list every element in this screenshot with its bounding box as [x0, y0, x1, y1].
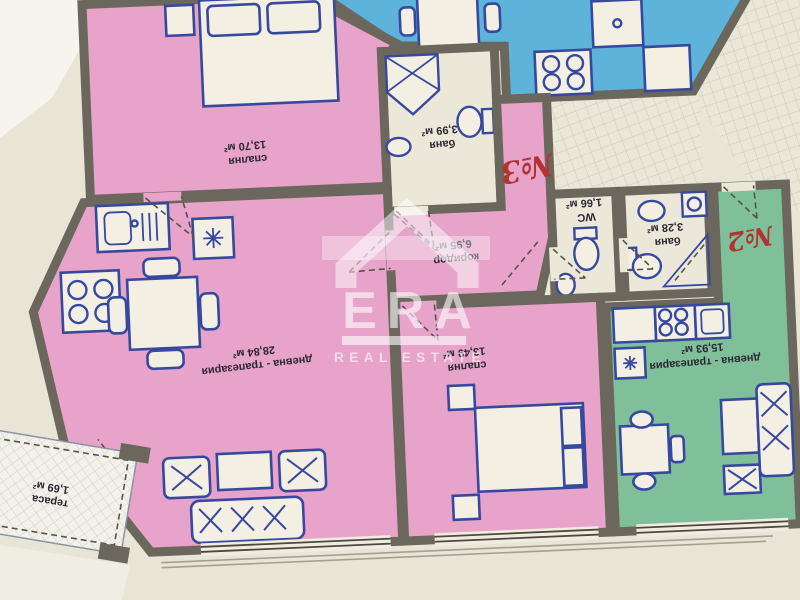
kitchen-counter-icon — [613, 307, 656, 343]
coffee-table-icon — [724, 464, 761, 494]
chair-icon — [108, 297, 128, 334]
bed-icon — [475, 403, 587, 492]
era-tagline-text: REAL ESTATE — [334, 350, 486, 365]
armchair-icon — [163, 456, 211, 498]
sofa-icon — [191, 496, 305, 543]
fridge-icon — [192, 217, 234, 259]
pillow-icon — [207, 4, 260, 36]
fridge-icon — [615, 347, 646, 378]
kitchen-sink-icon — [96, 203, 170, 252]
table-icon — [620, 424, 670, 474]
chair-icon — [633, 473, 656, 490]
chair-icon — [147, 350, 184, 370]
nightstand-icon — [448, 385, 475, 410]
stove-icon — [655, 305, 696, 341]
chair-icon — [630, 411, 653, 428]
pillow-icon — [561, 407, 583, 446]
sink-icon — [638, 200, 665, 221]
sink-icon — [695, 304, 730, 339]
nightstand-icon — [453, 495, 480, 520]
room-bathroom-apt2: баня 3,28 м² — [621, 187, 712, 296]
nightstand-icon — [165, 5, 194, 36]
era-brand-text: ERA — [342, 282, 482, 340]
washing-machine-icon — [682, 192, 707, 217]
bed-icon — [199, 0, 338, 106]
stove-icon — [534, 49, 592, 95]
pillow-icon — [563, 447, 585, 486]
floor-plan-photo: спалня 13,70 м² баня 3,99 м² №3 — [0, 0, 800, 600]
toilet-icon — [573, 227, 599, 270]
room-bathroom-apt3: баня 3,99 м² — [381, 47, 501, 212]
stair-landing — [550, 95, 704, 193]
pillow-icon — [267, 1, 320, 33]
coffee-table-icon — [217, 452, 273, 490]
chair-icon — [399, 7, 415, 36]
armchair-icon — [279, 449, 327, 491]
chair-icon — [670, 436, 684, 463]
room-wc: WC 1,66 м² — [551, 191, 621, 299]
cabinet-icon — [721, 399, 759, 455]
sofa-icon — [756, 383, 794, 476]
sink-icon — [386, 137, 411, 156]
floor-plan-canvas: спалня 13,70 м² баня 3,99 м² №3 — [0, 0, 800, 600]
chair-icon — [200, 293, 220, 330]
toilet-icon — [457, 106, 494, 138]
chair-icon — [143, 258, 180, 278]
kitchen-counter-icon — [591, 0, 643, 47]
era-divider-bar — [342, 336, 466, 345]
chair-icon — [484, 3, 500, 32]
room-bedroom-top: спалня 13,70 м² — [82, 0, 403, 199]
kitchen-counter-icon — [643, 45, 691, 91]
